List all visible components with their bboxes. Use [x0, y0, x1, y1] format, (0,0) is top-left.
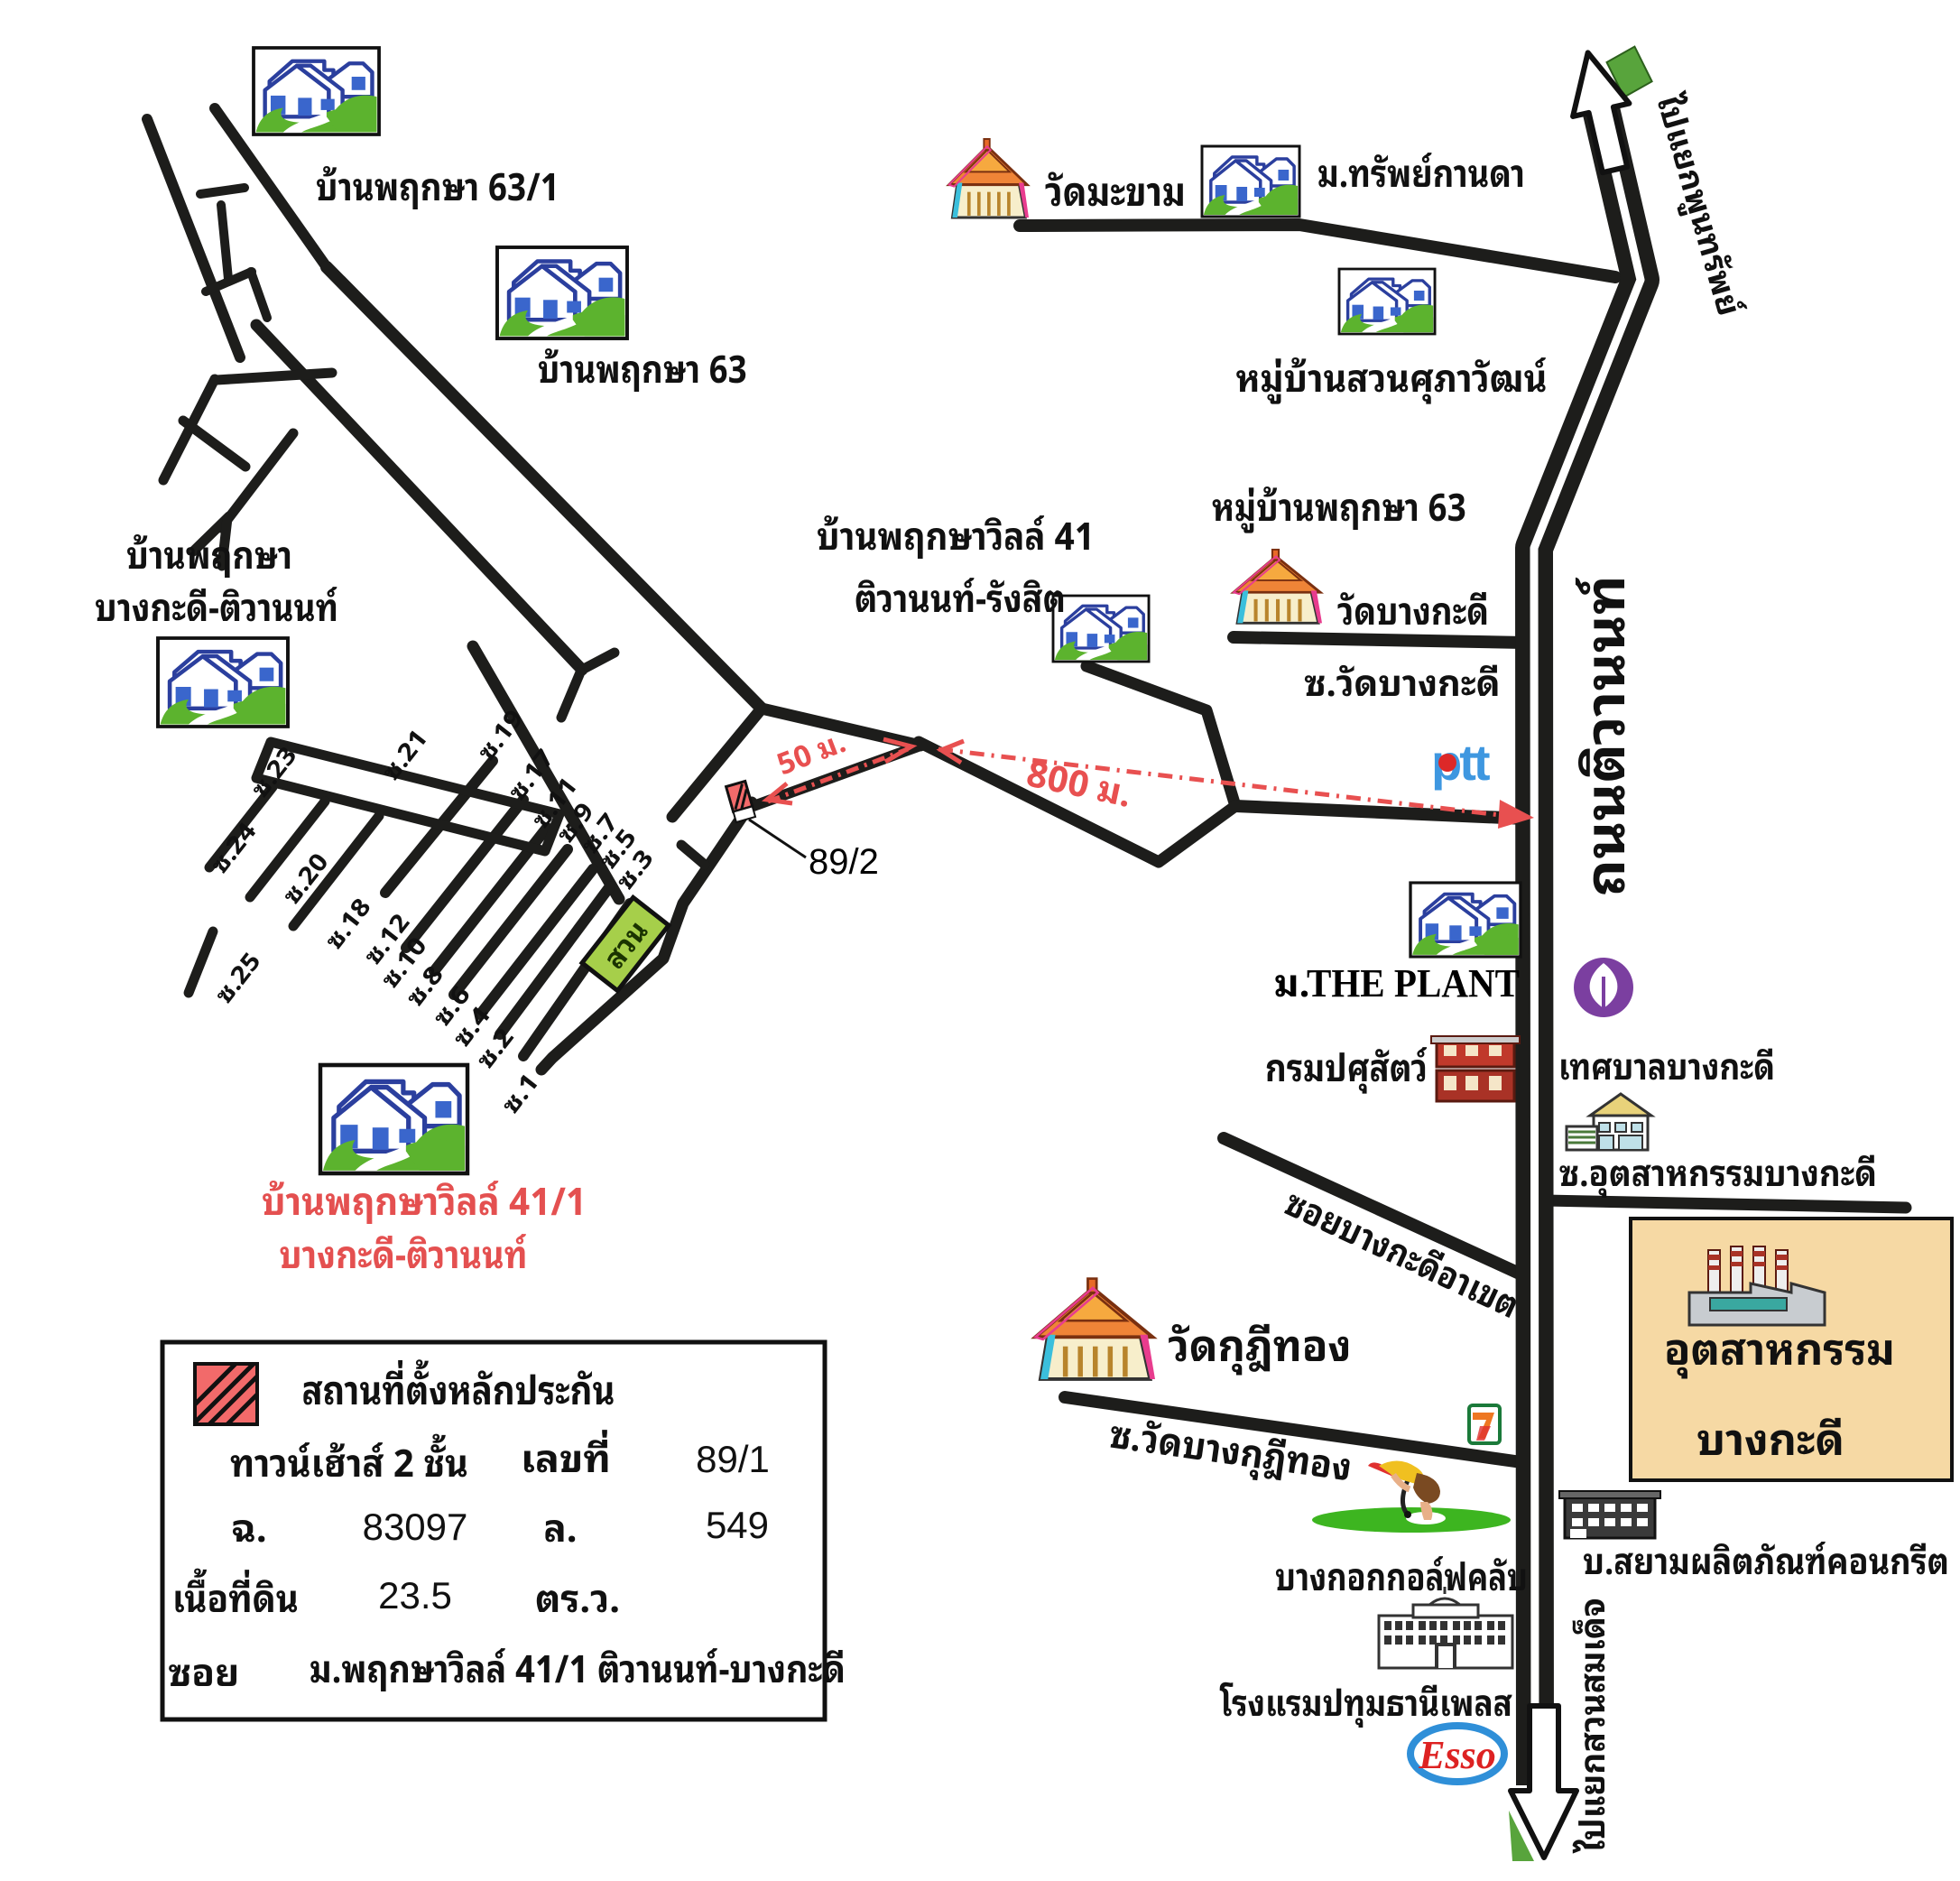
svg-text:ซ.วัดบางกะดี: ซ.วัดบางกะดี	[1305, 651, 1501, 709]
svg-text:บ้านพฤกษา 63/1: บ้านพฤกษา 63/1	[316, 153, 559, 214]
svg-text:โรงแรมปทุมธานีเพลส: โรงแรมปทุมธานีเพลส	[1219, 1671, 1512, 1728]
svg-text:อุตสาหกรรม: อุตสาหกรรม	[1664, 1311, 1895, 1380]
svg-text:บ้านพฤกษาวิลล์ 41: บ้านพฤกษาวิลล์ 41	[817, 502, 1095, 563]
svg-text:ซ.25: ซ.25	[204, 942, 269, 1010]
svg-text:ล.: ล.	[543, 1494, 577, 1555]
svg-text:ติวานนท์-รังสิต: ติวานนท์-รังสิต	[855, 564, 1066, 625]
svg-text:ตร.ว.: ตร.ว.	[535, 1564, 620, 1626]
svg-text:ม.ทรัพย์กานดา: ม.ทรัพย์กานดา	[1317, 139, 1525, 200]
svg-text:บางกะดี: บางกะดี	[1697, 1401, 1844, 1470]
svg-text:ม.พฤกษาวิลล์ 41/1 ติวานนท์-บาง: ม.พฤกษาวิลล์ 41/1 ติวานนท์-บางกะดี	[310, 1635, 846, 1696]
svg-text:ไปแยกพูนทรัพย์: ไปแยกพูนทรัพย์	[1645, 87, 1759, 321]
svg-text:ไปแยกสวนสมเด็จ: ไปแยกสวนสมเด็จ	[1562, 1598, 1617, 1854]
svg-text:บ้านพฤกษาวิลล์ 41/1: บ้านพฤกษาวิลล์ 41/1	[262, 1167, 587, 1228]
svg-text:89/1: 89/1	[696, 1438, 770, 1480]
svg-text:Esso: Esso	[1418, 1733, 1496, 1777]
svg-text:ซ.วัดบางกุฎีทอง: ซ.วัดบางกุฎีทอง	[1106, 1400, 1356, 1495]
svg-text:THE PLANT: THE PLANT	[1307, 961, 1520, 1005]
svg-text:89/2: 89/2	[809, 842, 879, 882]
svg-text:ทาวน์เฮ้าส์ 2 ชั้น: ทาวน์เฮ้าส์ 2 ชั้น	[230, 1429, 468, 1490]
svg-text:สถานที่ตั้งหลักประกัน: สถานที่ตั้งหลักประกัน	[302, 1356, 615, 1419]
svg-text:เทศบาลบางกะดี: เทศบาลบางกะดี	[1558, 1034, 1775, 1092]
svg-text:549: 549	[706, 1504, 769, 1546]
svg-text:23.5: 23.5	[378, 1574, 452, 1617]
svg-text:บางกอกกอล์ฟคลับ: บางกอกกอล์ฟคลับ	[1275, 1543, 1528, 1604]
svg-text:หมู่บ้านสวนศุภาวัฒน์: หมู่บ้านสวนศุภาวัฒน์	[1236, 344, 1548, 405]
svg-text:ซอย: ซอย	[169, 1638, 240, 1700]
svg-text:วัดบางกะดี: วัดบางกะดี	[1337, 577, 1489, 638]
svg-text:เนื้อที่ดิน: เนื้อที่ดิน	[172, 1564, 299, 1626]
svg-text:หมู่บ้านพฤกษา 63: หมู่บ้านพฤกษา 63	[1212, 473, 1466, 534]
svg-text:บางกะดี-ติวานนท์: บางกะดี-ติวานนท์	[95, 573, 338, 635]
svg-text:วัดกุฎีทอง: วัดกุฎีทอง	[1169, 1307, 1352, 1376]
svg-text:วัดมะขาม: วัดมะขาม	[1045, 157, 1186, 220]
svg-text:ม.: ม.	[1274, 949, 1309, 1010]
svg-text:บางกะดี-ติวานนท์: บางกะดี-ติวานนท์	[280, 1220, 528, 1282]
svg-text:ถนนติวานนท์: ถนนติวานนท์	[1557, 575, 1643, 896]
svg-text:83097: 83097	[363, 1506, 468, 1548]
svg-text:บ้านพฤกษา 63: บ้านพฤกษา 63	[538, 335, 747, 396]
svg-text:กรมปศุสัตว์: กรมปศุสัตว์	[1265, 1033, 1428, 1095]
svg-text:ฉ.: ฉ.	[231, 1494, 266, 1555]
svg-text:เลขที่: เลขที่	[521, 1424, 611, 1486]
